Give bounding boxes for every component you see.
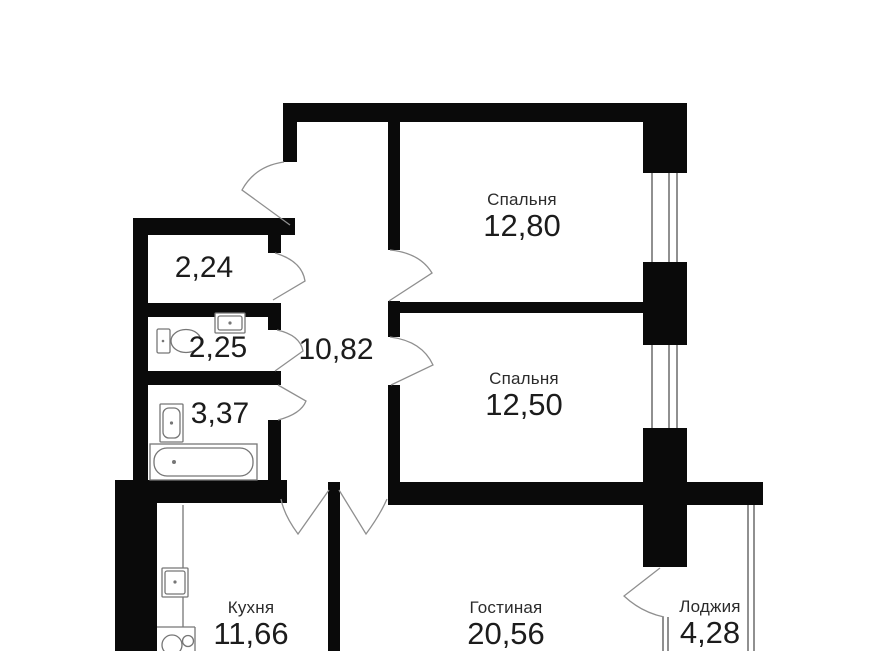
window-loggia-right-line: [753, 505, 755, 651]
room-area: 2,24: [175, 251, 233, 285]
window-loggia-left-line: [662, 617, 664, 651]
wall-bathroom-right-stub: [268, 420, 281, 482]
room-area: 11,66: [213, 617, 288, 651]
wall-outer-left-upper: [133, 218, 148, 482]
wall-outer-top: [283, 103, 687, 122]
entry-door-arc: [242, 162, 290, 225]
room-label-bathroom: 3,37: [191, 397, 249, 431]
room-label-loggia: Лоджия 4,28: [679, 597, 740, 651]
living-door-arc: [339, 490, 387, 534]
room-area: 12,50: [485, 388, 563, 423]
wall-loggia-top: [687, 482, 763, 505]
bathtub: [150, 444, 257, 480]
room-label-living-room: Гостиная 20,56: [467, 598, 545, 651]
wall-outer-right-col1: [643, 103, 687, 173]
room-name: Лоджия: [679, 597, 740, 616]
wall-outer-right-col3: [643, 428, 687, 567]
room-name: Спальня: [487, 190, 557, 209]
kitchen-sink: [162, 568, 188, 597]
window-bedroom1-line: [651, 173, 653, 262]
room-label-hallway: 10,82: [298, 333, 373, 367]
wall-wc-bathroom-divider: [133, 371, 281, 385]
wall-storage-right-stub: [268, 235, 281, 253]
room-label-storage: 2,24: [175, 251, 233, 285]
room-name: Кухня: [228, 598, 275, 617]
wall-outer-left-lower: [115, 482, 157, 651]
wall-kitchen-living-divider: [328, 482, 340, 651]
bathroom-door-arc: [278, 385, 306, 420]
room-area: 12,80: [483, 209, 561, 244]
window-bedroom2-line: [676, 345, 678, 428]
window-loggia-left-line: [667, 617, 669, 651]
room-area: 10,82: [298, 333, 373, 367]
bedroom1-door-arc: [389, 250, 432, 301]
room-label-kitchen: Кухня 11,66: [213, 598, 288, 651]
room-area: 3,37: [191, 397, 249, 431]
kitchen-counter: [157, 505, 195, 651]
wall-kitchen-top: [115, 480, 287, 503]
room-label-wc: 2,25: [189, 331, 247, 365]
stove: [162, 635, 194, 651]
wall-storage-top: [133, 218, 295, 235]
wall-wc-right-stub: [268, 317, 281, 330]
room-label-bedroom-top: Спальня 12,80: [483, 190, 561, 244]
room-name: Спальня: [489, 369, 559, 388]
room-area: 20,56: [467, 617, 545, 651]
floor-plan: 2,24 2,25 3,37 10,82 Спальня 12,80 Спаль…: [0, 0, 880, 651]
wall-living-top: [388, 482, 645, 505]
loggia-door-arc: [624, 568, 664, 617]
room-name: Гостиная: [470, 598, 543, 617]
window-bedroom2-line: [668, 345, 670, 428]
wall-storage-wc-divider: [133, 303, 281, 317]
kitchen-door-arc: [281, 490, 329, 534]
wall-outer-right-col2: [643, 262, 687, 345]
bedroom2-door-arc: [390, 337, 433, 385]
window-bedroom2-line: [651, 345, 653, 428]
window-loggia-right-line: [747, 505, 749, 651]
wall-entry-stub: [283, 103, 297, 162]
window-bedroom1-line: [676, 173, 678, 262]
room-area: 2,25: [189, 331, 247, 365]
bathroom-sink: [160, 404, 183, 442]
storage-door-arc: [273, 253, 305, 300]
wall-bedrooms-divider: [392, 302, 645, 313]
window-bedroom1-line: [668, 173, 670, 262]
room-label-bedroom-mid: Спальня 12,50: [485, 369, 563, 423]
wall-hallway-bedroom1: [388, 122, 400, 250]
room-area: 4,28: [680, 616, 740, 651]
